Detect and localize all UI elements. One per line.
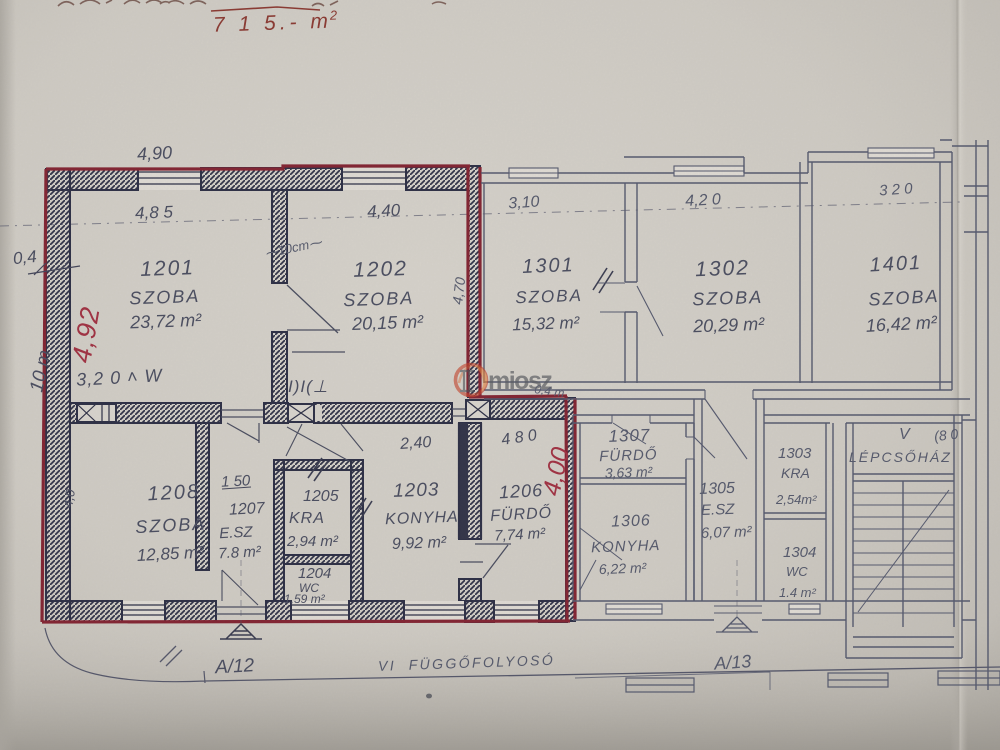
svg-text:1202: 1202 — [353, 257, 408, 282]
svg-text:1302: 1302 — [695, 256, 750, 281]
svg-text:4,70: 4,70 — [449, 276, 468, 305]
svg-text:SZOBA: SZOBA — [692, 287, 764, 309]
svg-text:KRA: KRA — [289, 510, 325, 527]
svg-text:1207: 1207 — [229, 500, 267, 519]
svg-text:20,29 m²: 20,29 m² — [692, 314, 766, 337]
svg-text:1205: 1205 — [303, 488, 339, 505]
svg-text:1,59 m²: 1,59 m² — [284, 592, 326, 606]
svg-text:4,2 0: 4,2 0 — [685, 191, 722, 210]
svg-text:3 2 0: 3 2 0 — [879, 180, 914, 199]
svg-text:1307: 1307 — [608, 425, 650, 445]
svg-text:SZOBA: SZOBA — [868, 286, 940, 310]
svg-text:2,94 m²: 2,94 m² — [286, 533, 339, 550]
svg-text:12,85 m²: 12,85 m² — [136, 542, 205, 565]
svg-text:SZOBA: SZOBA — [129, 286, 201, 308]
svg-text:20,15 m²: 20,15 m² — [351, 311, 425, 334]
svg-text:0,4: 0,4 — [12, 247, 37, 268]
svg-text:WC: WC — [786, 564, 808, 579]
svg-text:A/13: A/13 — [713, 651, 752, 674]
svg-text:1304: 1304 — [783, 544, 816, 561]
svg-text:7,74 m²: 7,74 m² — [494, 525, 547, 545]
svg-text:6,22 m²: 6,22 m² — [599, 559, 648, 577]
svg-text:A/12: A/12 — [214, 655, 256, 678]
svg-text:4,8 5: 4,8 5 — [135, 202, 174, 222]
svg-text:9,92 m²: 9,92 m² — [392, 534, 447, 553]
svg-text:1305: 1305 — [699, 480, 735, 498]
svg-text:1208: 1208 — [147, 481, 201, 506]
svg-text:7.8 m²: 7.8 m² — [218, 543, 262, 562]
svg-text:4,40: 4,40 — [367, 200, 402, 221]
svg-text:1201: 1201 — [140, 256, 195, 281]
svg-text:1301: 1301 — [522, 254, 575, 278]
svg-text:1.4 m²: 1.4 m² — [779, 585, 817, 600]
svg-text:1401: 1401 — [869, 252, 923, 277]
svg-text:2,40: 2,40 — [399, 434, 432, 453]
svg-text:1306: 1306 — [611, 512, 651, 530]
svg-text:KONYHA: KONYHA — [385, 509, 459, 529]
svg-text:FÜRDŐ: FÜRDŐ — [599, 445, 658, 465]
svg-text:4,90: 4,90 — [137, 142, 173, 164]
svg-text:15,32 m²: 15,32 m² — [512, 313, 581, 334]
svg-text:16,42 m²: 16,42 m² — [865, 312, 938, 336]
svg-text:(8 0: (8 0 — [933, 426, 959, 444]
svg-text:I)I(⊥: I)I(⊥ — [288, 377, 329, 396]
svg-text:1204: 1204 — [298, 565, 331, 582]
svg-text:1303: 1303 — [778, 445, 812, 462]
svg-text:SZOBA: SZOBA — [343, 288, 415, 310]
svg-text:SZOBA: SZOBA — [515, 286, 583, 307]
svg-text:KRA: KRA — [781, 465, 810, 481]
svg-text:1203: 1203 — [393, 479, 440, 502]
svg-text:23,72 m²: 23,72 m² — [129, 310, 203, 333]
svg-text:E.SZ: E.SZ — [701, 501, 736, 519]
svg-text:2,54m²: 2,54m² — [775, 492, 817, 507]
svg-text:SZOBA: SZOBA — [135, 513, 207, 537]
svg-text:LÉPCSŐHÁZ: LÉPCSŐHÁZ — [849, 449, 952, 465]
svg-text:2: 2 — [329, 7, 339, 22]
svg-text:E.SZ: E.SZ — [219, 524, 254, 543]
svg-text:3,10: 3,10 — [508, 193, 540, 212]
svg-text:KONYHA: KONYHA — [591, 537, 661, 556]
svg-text:7 1 5.- m: 7 1 5.- m — [213, 10, 333, 37]
svg-text:3,63 m²: 3,63 m² — [605, 463, 654, 481]
svg-text:6,07 m²: 6,07 m² — [701, 523, 753, 542]
svg-text:V: V — [899, 426, 911, 443]
